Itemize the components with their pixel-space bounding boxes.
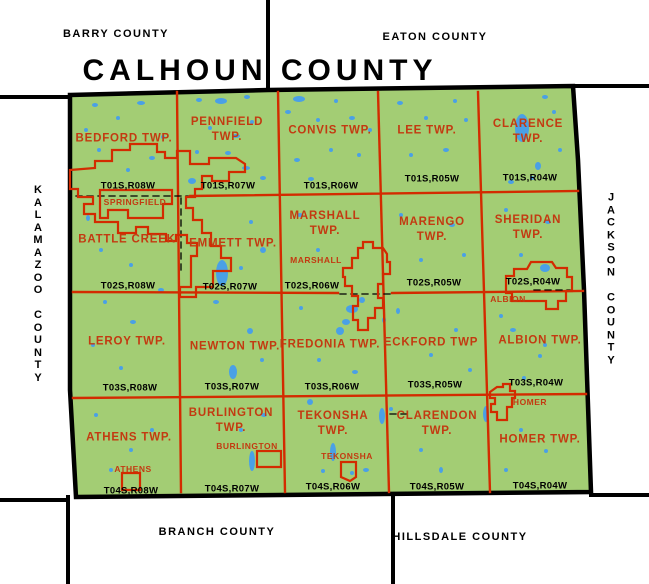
township-label-eckford: ECKFORD TWP [384, 336, 478, 351]
lake [504, 468, 508, 472]
lake [225, 151, 231, 155]
lake [260, 176, 266, 180]
lake [544, 449, 548, 453]
neighbor-county-branch: BRANCH COUNTY [159, 526, 276, 538]
township-range-label-clarence: T01S,R04W [503, 173, 557, 184]
lake [94, 413, 98, 417]
township-label-homer-twp: HOMER TWP. [499, 433, 580, 448]
township-range-label-fredonia: T03S,R06W [305, 382, 359, 393]
township-label-marengo: MARENGO TWP. [399, 215, 465, 245]
township-range-label-albion-twp: T03S,R04W [509, 378, 563, 389]
township-label-albion-twp: ALBION TWP. [498, 334, 581, 349]
lake [213, 300, 219, 304]
neighbor-county-kalamazoo: K A L A M A Z O O C O U N T Y [33, 184, 42, 384]
township-range-label-newton: T03S,R07W [205, 382, 259, 393]
lake [285, 110, 291, 114]
lake [519, 253, 523, 257]
lake [317, 358, 321, 362]
township-range-label-clarendon: T04S,R05W [410, 482, 464, 493]
lake [249, 451, 255, 471]
city-label-springfield: SPRINGFIELD [104, 197, 167, 207]
lake [453, 99, 457, 103]
lake [429, 353, 433, 357]
lake [109, 468, 113, 472]
township-label-lee: LEE TWP. [397, 124, 456, 139]
lake [137, 101, 145, 105]
lake [464, 118, 468, 122]
lake [260, 358, 264, 362]
lake [397, 101, 403, 105]
lake [349, 116, 355, 120]
township-label-burlington-twp: BURLINGTON TWP. [189, 406, 273, 436]
township-label-leroy: LEROY TWP. [88, 335, 166, 350]
township-range-label-marshall-twp: T02S,R06W [285, 281, 339, 292]
lake [359, 297, 365, 303]
lake [389, 407, 393, 411]
city-label-homer-village: HOMER [513, 397, 547, 407]
lake [307, 399, 313, 405]
lake [519, 428, 523, 432]
township-label-clarendon: CLARENDON TWP. [397, 409, 478, 439]
lake [419, 258, 423, 262]
lake [97, 148, 101, 152]
lake [244, 95, 250, 99]
township-range-label-pennfield: T01S,R07W [201, 181, 255, 192]
lake [424, 116, 428, 120]
lake [454, 328, 458, 332]
lake [129, 263, 133, 267]
city-label-tekonsha-village: TEKONSHA [321, 451, 373, 461]
township-range-label-convis: T01S,R06W [304, 181, 358, 192]
township-label-clarence: CLARENCE TWP. [493, 117, 563, 147]
township-label-marshall-twp: MARSHALL TWP. [290, 209, 361, 239]
township-label-pennfield: PENNFIELD TWP. [191, 115, 263, 145]
map-title: CALHOUN COUNTY [83, 54, 438, 88]
lake [379, 408, 385, 424]
lake [316, 118, 320, 122]
lake [249, 220, 253, 224]
lake [149, 156, 155, 160]
lake [357, 153, 361, 157]
township-range-label-sheridan: T02S,R04W [506, 277, 560, 288]
neighbor-county-barry: BARRY COUNTY [63, 28, 169, 40]
lake [396, 308, 400, 314]
township-label-fredonia: FREDONIA TWP. [280, 338, 381, 353]
lake [247, 328, 253, 334]
neighbor-county-jackson: J A C K S O N C O U N T Y [607, 192, 616, 367]
township-label-battle-creek: BATTLE CREEK [78, 233, 176, 248]
lake [294, 158, 300, 162]
township-label-emmett: EMMETT TWP. [189, 237, 277, 252]
lake [419, 448, 423, 452]
lake [499, 314, 503, 318]
lake [462, 253, 466, 257]
lake [350, 471, 354, 475]
lake [321, 469, 325, 473]
township-range-label-homer-twp: T04S,R04W [513, 481, 567, 492]
township-label-athens-twp: ATHENS TWP. [86, 431, 172, 446]
lake [126, 168, 130, 172]
lake [293, 96, 305, 102]
lake [342, 319, 350, 325]
calhoun-county-map: CALHOUN COUNTY BARRY COUNTY EATON COUNTY… [0, 0, 649, 584]
lake [439, 467, 443, 473]
lake [535, 162, 541, 170]
lake [119, 366, 123, 370]
lake [239, 266, 243, 270]
township-label-bedford: BEDFORD TWP. [76, 132, 173, 147]
lake [510, 328, 516, 332]
lake [130, 320, 136, 324]
lake [86, 215, 90, 221]
township-label-tekonsha-twp: TEKONSHA TWP. [298, 409, 369, 439]
city-label-albion-city: ALBION [490, 294, 526, 304]
lake [299, 306, 303, 310]
lake [129, 448, 133, 452]
township-range-label-athens-twp: T04S,R08W [104, 486, 158, 497]
neighbor-county-hillsdale: HILLSDALE COUNTY [392, 531, 527, 543]
lake [504, 208, 508, 212]
township-label-sheridan: SHERIDAN TWP. [495, 213, 561, 243]
city-label-marshall-city: MARSHALL [290, 255, 342, 265]
lake [229, 365, 237, 379]
lake [195, 150, 199, 154]
township-range-label-bedford: T01S,R08W [101, 181, 155, 192]
lake [542, 95, 548, 99]
lake [443, 148, 449, 152]
lake [409, 153, 413, 157]
lake [558, 148, 562, 152]
lake [468, 368, 472, 372]
city-label-athens-village: ATHENS [114, 464, 151, 474]
township-range-label-burlington-twp: T04S,R07W [205, 484, 259, 495]
township-range-label-leroy: T03S,R08W [103, 383, 157, 394]
lake [352, 370, 358, 374]
township-range-label-emmett: T02S,R07W [203, 282, 257, 293]
lake [116, 116, 120, 120]
lake [99, 248, 103, 252]
lake [334, 99, 338, 103]
lake [540, 264, 550, 272]
township-range-label-lee: T01S,R05W [405, 174, 459, 185]
neighbor-county-eaton: EATON COUNTY [383, 31, 488, 43]
township-label-convis: CONVIS TWP. [288, 124, 371, 139]
township-range-label-tekonsha-twp: T04S,R06W [306, 482, 360, 493]
lake [336, 327, 344, 335]
lake [196, 98, 202, 102]
lake [552, 110, 556, 114]
lake [103, 300, 107, 304]
lake [188, 178, 196, 184]
township-range-label-eckford: T03S,R05W [408, 380, 462, 391]
township-range-label-battle-creek: T02S,R08W [101, 281, 155, 292]
township-range-label-marengo: T02S,R05W [407, 278, 461, 289]
lake [538, 354, 542, 358]
city-label-burlington-village: BURLINGTON [216, 441, 278, 451]
lake [215, 98, 227, 104]
township-label-newton: NEWTON TWP. [190, 340, 280, 355]
lake [92, 103, 98, 107]
lake [363, 468, 369, 472]
lake [329, 148, 333, 152]
lake [316, 248, 320, 252]
